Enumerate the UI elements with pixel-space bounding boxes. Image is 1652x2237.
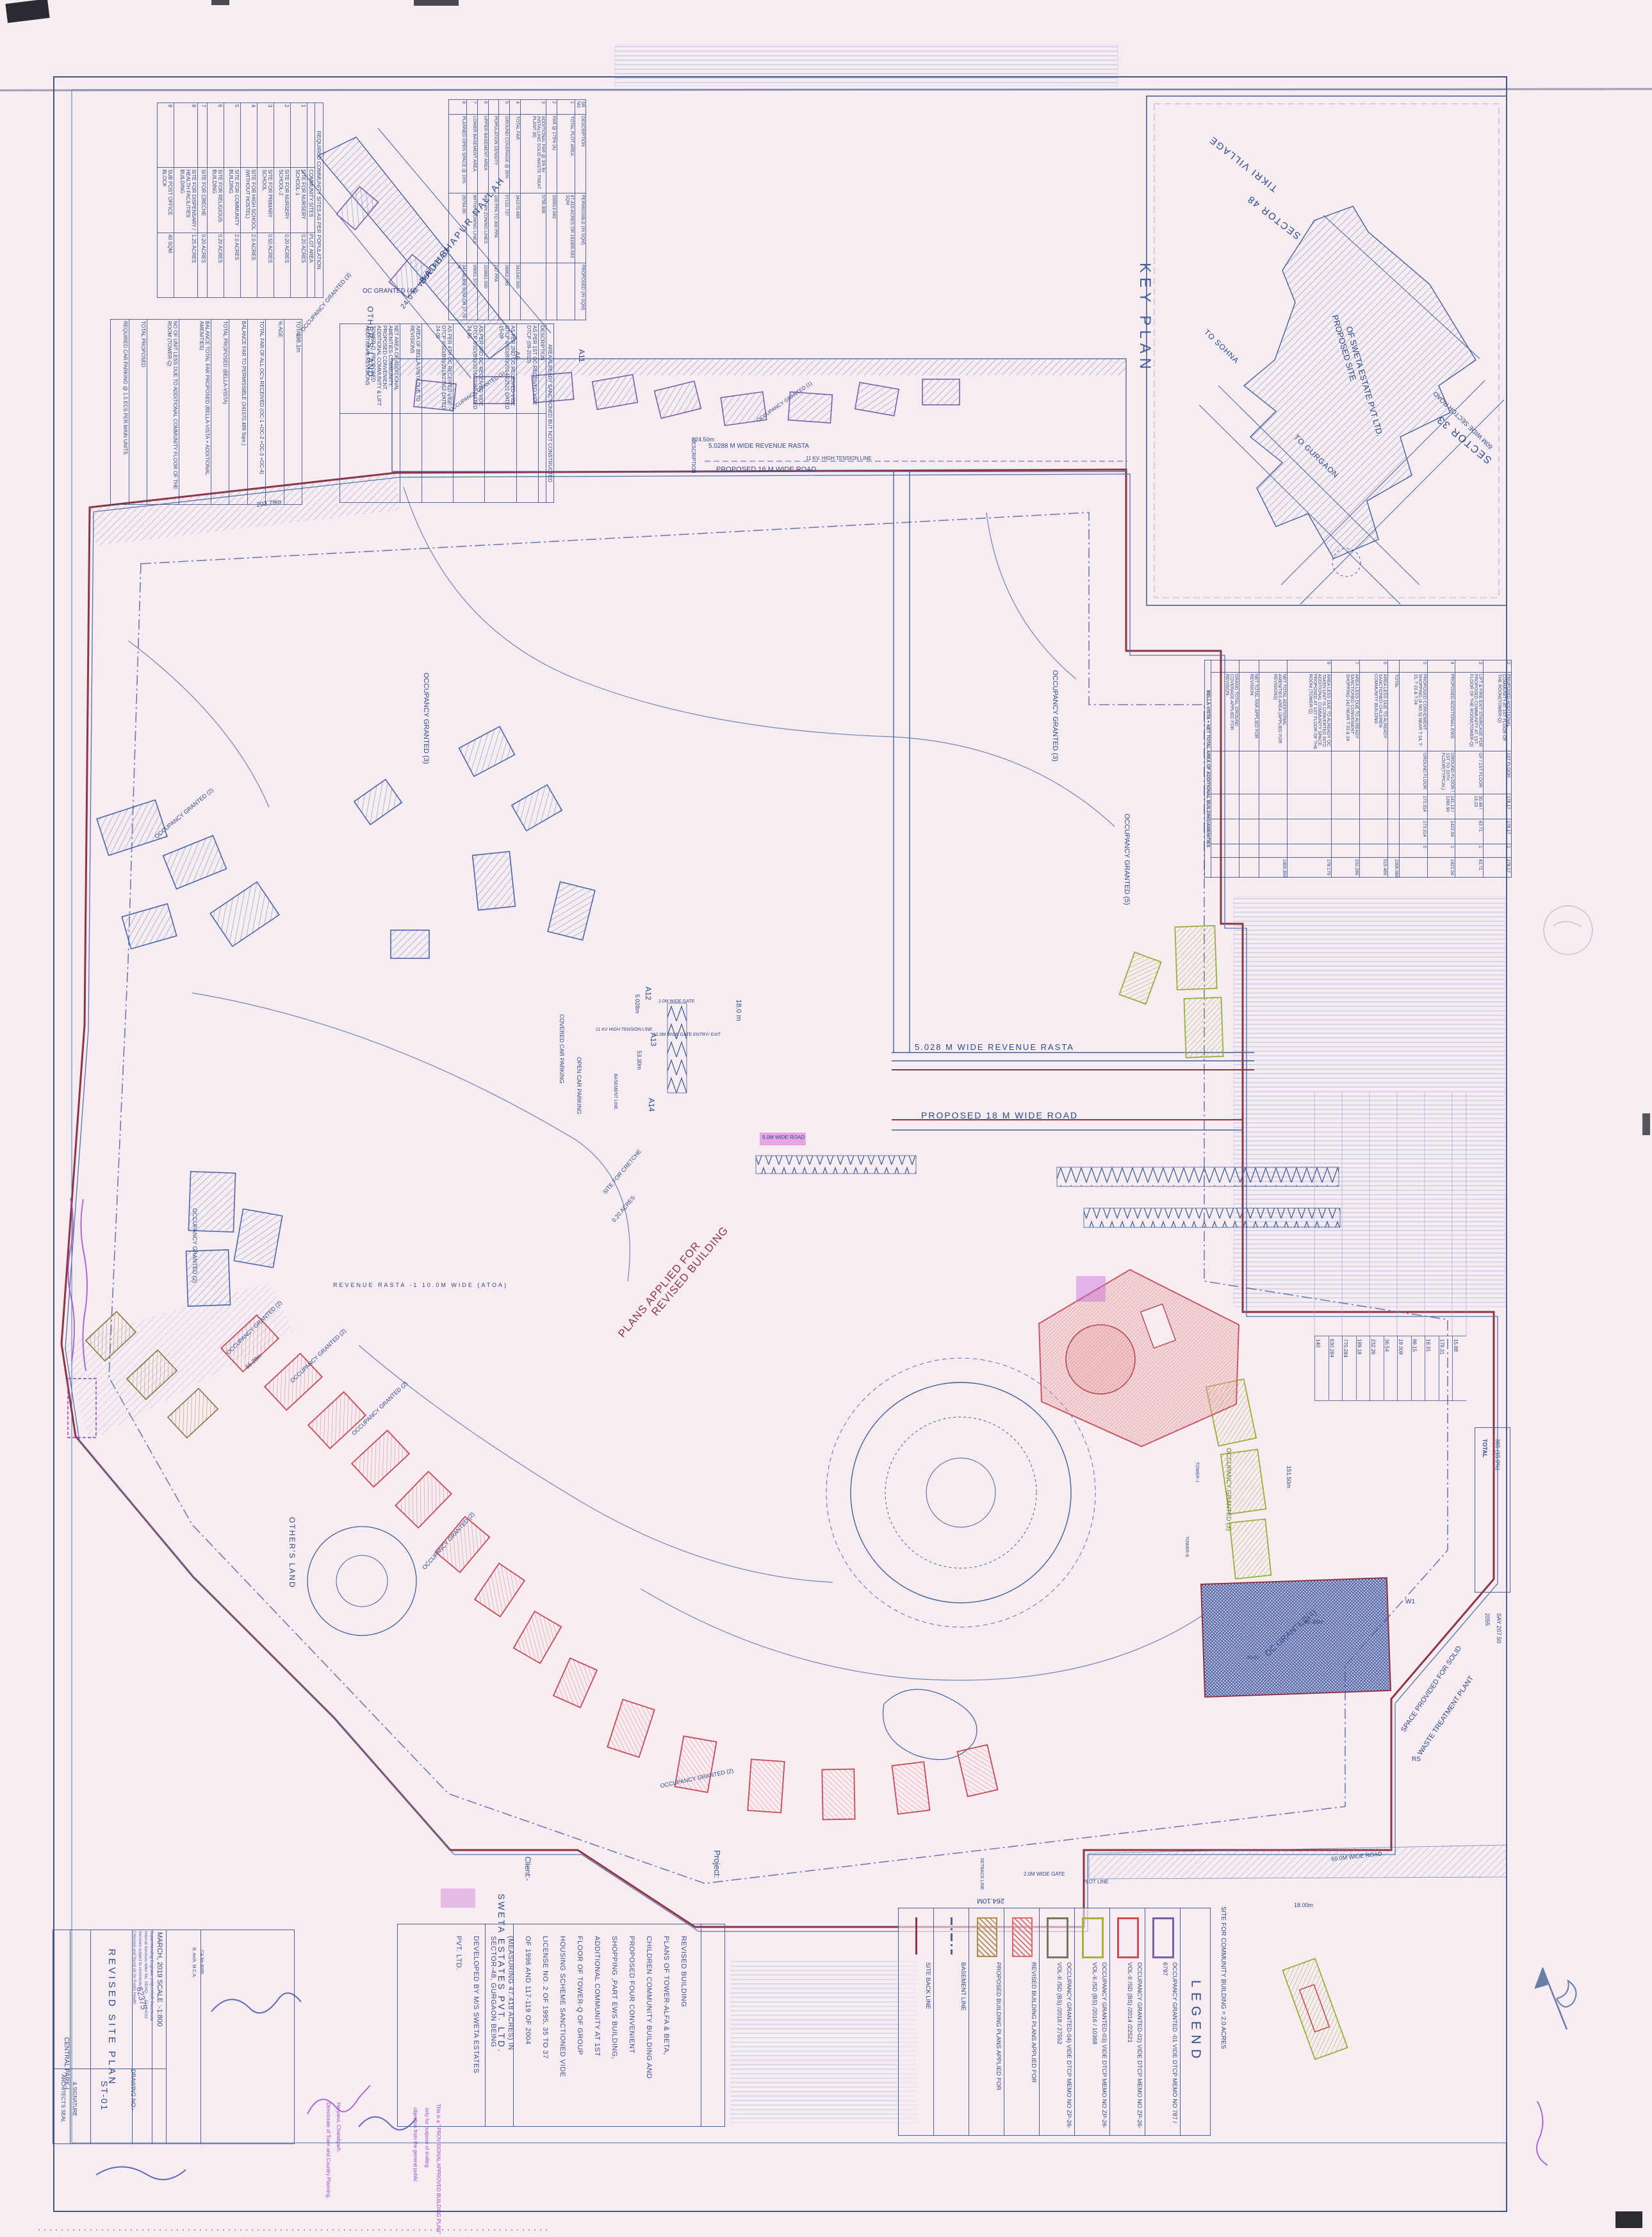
community-table-title: REQUIRED COMMUNITY SITES AS PER POPULATI… bbox=[315, 103, 323, 298]
legend-swatch bbox=[951, 1917, 953, 1954]
scan-artifact bbox=[1642, 1113, 1650, 1135]
summary-row: % AGE bbox=[266, 320, 284, 505]
numbers-strip-cell: 98.15 bbox=[1411, 1336, 1425, 1401]
legend-swatch bbox=[977, 1917, 997, 1957]
area-statement-row: 5GROUND COVERAGE @ 35%67132.73728962.095 bbox=[499, 100, 510, 320]
amendment-row: 2PROPOSED ADDITIONAL COMMUNITY AT 1ST FL… bbox=[1484, 660, 1512, 878]
project-description-line: PVT. LTD. bbox=[455, 1936, 462, 1971]
legend-item: OCCUPANCY GRANTED-02) VIDE DTCP MEMO NO … bbox=[1109, 1908, 1145, 2135]
title-block bbox=[53, 1930, 295, 2144]
legend-swatch bbox=[1012, 1917, 1033, 1957]
project-description-line: (MEASURING 47.418 ACRES) IN bbox=[507, 1936, 514, 2051]
legend-label: OCCUPANCY GRANTED -01 VIDE DTCP MEMO NO … bbox=[1148, 1962, 1179, 2131]
legend-swatch bbox=[1117, 1917, 1139, 1958]
summary-row: TOTAL PROPOSED (BELLA-VISTA) bbox=[211, 320, 229, 505]
legend-label: SITE BACK LINE bbox=[901, 1962, 933, 2131]
scan-artifact bbox=[211, 0, 229, 5]
project-description-line: DEVELOPED BY M/S SWETA ESTATES bbox=[472, 1936, 480, 2074]
community-sites-table: REQUIRED COMMUNITY SITES AS PER POPULATI… bbox=[157, 102, 323, 298]
legend-swatch bbox=[915, 1917, 917, 1954]
scanned-site-plan-sheet: REQUIRED COMMUNITY SITES AS PER POPULATI… bbox=[0, 0, 1652, 2237]
numbers-strip-cell: 19.31 bbox=[1425, 1336, 1439, 1401]
numbers-strip-cell: 770.284 bbox=[1342, 1336, 1356, 1401]
scan-artifact bbox=[1615, 2211, 1642, 2228]
amendment-row: 6AREA LESS DUE TO ALREADY SANCTIONED CHI… bbox=[1359, 660, 1387, 878]
numbers-strip-cell: 19.309 bbox=[1397, 1336, 1411, 1401]
sanctioned-row: AREA OF BELLA-VISTA DUE TO REVISIONS bbox=[400, 324, 421, 503]
amendment-table: 2PROPOSED ADDITIONAL COMMUNITY AT 1ST FL… bbox=[1204, 660, 1512, 878]
summary-row: BALANCE FAR TO PERMISSIBLE (341570.489 S… bbox=[229, 320, 247, 505]
numbers-strip: 140630.284770.284189.18232.2636.5419.309… bbox=[1314, 1336, 1468, 1400]
summary-row: BALANCE TOTAL FAR PROPOSED (BELLA-VISTA … bbox=[179, 320, 211, 505]
numbers-strip-cell: 189.18 bbox=[1356, 1336, 1370, 1401]
project-description-line: REVISED BUILDING bbox=[680, 1936, 687, 2007]
legend-item: OCCUPANCY GRANTED-04) VIDE DTCP MEMO NO … bbox=[1039, 1908, 1075, 2135]
project-block: REVISED BUILDINGPLANS OF TOWER-ALFA & BE… bbox=[397, 1924, 725, 2127]
community-site-row: 9SUB POST OFFICE BLOCK40 SQM bbox=[158, 103, 174, 298]
community-site-row: 8SITE FOR DISPENSARY / HEALTH FACILITIES… bbox=[174, 103, 198, 298]
sanctioned-row: AS PER 4TH OC RECEIVED VIDE DTCP II/SD(B… bbox=[421, 324, 453, 503]
summary-row: REQUIRED CAR PARKING @ 1.5 ECS PER MAIN … bbox=[111, 320, 129, 505]
amendment-row: GRAND TOTAL GROUND COVERAGE APPLIED FOR … bbox=[1211, 660, 1239, 878]
area-statement-row: 6UPPER BASEMENT AREAWITHIN ZONING LINES1… bbox=[478, 100, 489, 320]
legend-item: SITE BACK LINE bbox=[898, 1908, 934, 2135]
amendment-row: 3LIFT & FIRE EXIT STAIRCASE FOR PROPOSED… bbox=[1455, 660, 1484, 878]
numbers-strip-cell: 140 bbox=[1314, 1336, 1329, 1401]
summary-row: TOTAL bbox=[284, 320, 302, 505]
project-description-line: CHILDREN COMMUNITY BUILDING AND bbox=[645, 1936, 653, 2079]
legend: LEGEND OCCUPANCY GRANTED -01 VIDE DTCP M… bbox=[898, 1908, 1211, 2136]
community-site-row: 6SITE FOR RELIGIOUS BUILDING0.20 ACRES bbox=[208, 103, 224, 298]
sanctioned-row: AS PER 3RD OC RECEIVED VIDE DTCP II/SD(B… bbox=[454, 324, 485, 503]
area-statement-row: 4TOTAL FAR341570.489341042.500 bbox=[510, 100, 521, 320]
community-site-row: 7SITE FOR CRECHE0.20 ACRES bbox=[198, 103, 208, 298]
sanctioned-row: AS PER 2ND OC RECEIVED VIDE DTCP II/SD(B… bbox=[485, 324, 516, 503]
area-statement-row: 2FAR @ 175% (A)335813.683 bbox=[546, 100, 557, 320]
community-site-row: 1SITE FOR NURSERY SCHOOL-10.20 ACRES bbox=[291, 103, 307, 298]
community-site-row: 2SITE FOR NURSERY SCHOOL-20.20 ACRES bbox=[274, 103, 291, 298]
legend-label: REVISED BUILDING PLANS APPLIED FOR bbox=[1007, 1962, 1038, 2131]
amendment-row: NET TOTAL FAR APPLIED FOR REVISION bbox=[1239, 660, 1259, 878]
project-description-line: SHOPPING ,PART EWS BUILDING, bbox=[610, 1936, 618, 2059]
legend-label: BASEMENT LINE bbox=[936, 1962, 968, 2131]
numbers-strip-cell: 630.284 bbox=[1329, 1336, 1343, 1401]
community-site-row: 4SITE FOR HIGH SCHOOL (WITHOUT HOSTEL)2.… bbox=[241, 103, 258, 298]
community-site-row: 5SITE FOR COMMUNITY BUILDING2.0 ACRES bbox=[224, 103, 241, 298]
amendment-footer: BELLA-VISTA + NET TOTAL AREA OF ADDITION… bbox=[1205, 660, 1211, 878]
sanctioned-row: AS PER 1ST OC RECEIVED VIDE DTCP (09-201… bbox=[516, 324, 538, 503]
numbers-strip-cell: 15.88 bbox=[1452, 1336, 1466, 1401]
project-description-line: LICENSE NO. 2 OF 1995, 35 TO 37 bbox=[541, 1936, 549, 2059]
area-statement-row: 1TOTAL PLOT AREA47.410 ACRES OR 191806.6… bbox=[557, 100, 575, 320]
total-box bbox=[1475, 1427, 1510, 1593]
project-description-line: PROPOSED FOUR CONVENIENT bbox=[628, 1936, 635, 2054]
project-description-line: ADDITIONAL COMMUNITY AT 1ST bbox=[593, 1936, 601, 2057]
project-description-line: FLOOR OF TOWER-Q OF GROUP bbox=[576, 1936, 584, 2055]
project-description-line: PLANS OF TOWER-ALFA & BETA, bbox=[662, 1936, 670, 2055]
legend-swatch bbox=[1152, 1917, 1174, 1958]
legend-label: OCCUPANCY GRANTED-03) VIDE DTCP MEMO NO … bbox=[1077, 1962, 1109, 2131]
legend-item: REVISED BUILDING PLANS APPLIED FOR bbox=[1004, 1908, 1040, 2135]
legend-item: OCCUPANCY GRANTED-03) VIDE DTCP MEMO NO … bbox=[1074, 1908, 1110, 2135]
amendment-row: 8AREA LESS DUE TO ALREADY OC TAKEN UNIT … bbox=[1287, 660, 1331, 878]
sanctioned-row: NET AREA OF ADDITIONAL AMENITIES COMMUNI… bbox=[340, 324, 400, 503]
far-summary-table: TOTAL% AGETOTAL FAR OF ALL OC's RECEIVED… bbox=[110, 319, 302, 505]
legend-swatch bbox=[1047, 1917, 1068, 1958]
area-statement-row: 3ADDITIONAL FAR @ 3% for INSTALLING SOLI… bbox=[520, 100, 546, 320]
sanctioned-area-table: AREA ALREADY SANCTIONED BUT NOT CONSTRUC… bbox=[339, 324, 554, 503]
amendment-row: 7AREA LESS DUE TO ALREADY SANCTIONED CON… bbox=[1331, 660, 1359, 878]
summary-row: NO OF UNIT LESS DUE TO ADDITIONAL COMMUN… bbox=[147, 320, 179, 505]
legend-label: OCCUPANCY GRANTED-02) VIDE DTCP MEMO NO … bbox=[1113, 1962, 1144, 2131]
summary-row: TOTAL PROPOSED bbox=[129, 320, 147, 505]
summary-row: TOTAL FAR OF ALL OC's RECEIVED (OC-1 +OC… bbox=[247, 320, 265, 505]
area-statement-row: POPULATION DENSITY100 PPA TO 300 PPA247 … bbox=[488, 100, 499, 320]
legend-label: PROPOSED BUILDING PLANS APPLIED FOR bbox=[972, 1962, 1003, 2131]
legend-swatch bbox=[1082, 1917, 1104, 1958]
scan-artifact bbox=[414, 0, 459, 6]
amendment-row: NET TOTAL ADDITIONAL AMENITIES AREA (APP… bbox=[1259, 660, 1287, 878]
legend-item: PROPOSED BUILDING PLANS APPLIED FOR bbox=[969, 1908, 1004, 2135]
legend-item: OCCUPANCY GRANTED -01 VIDE DTCP MEMO NO … bbox=[1145, 1908, 1181, 2135]
area-statement-row: 7LOWER BASEMENT AREAWITHIN ZONING LINES9… bbox=[467, 100, 478, 320]
amendment-row: TOTAL 2306.084 bbox=[1387, 660, 1399, 878]
amendment-row: 4PROPOSED ADDITIONAL EWS GROUND FLOOR / … bbox=[1427, 660, 1455, 878]
numbers-strip-cell: 179.31 bbox=[1439, 1336, 1453, 1401]
numbers-strip-cell: 36.54 bbox=[1384, 1336, 1398, 1401]
legend-label: OCCUPANCY GRANTED-04) VIDE DTCP MEMO NO … bbox=[1042, 1962, 1074, 2131]
project-description-line: HOUSING SCHEME SANCTIONED VIDE bbox=[559, 1936, 566, 2077]
numbers-strip-cell: 232.26 bbox=[1370, 1336, 1384, 1401]
community-site-row: 3SITE FOR PRIMARY SCHOOL0.50 ACRES bbox=[258, 103, 274, 298]
amendment-row: 5PROPOSED CONVENIENT SHOPPING (4 NO.S) N… bbox=[1399, 660, 1427, 878]
area-statement-table: SR NO DESCRIPTION PERMISSIBLE (IN SQM) P… bbox=[448, 99, 586, 320]
project-description-line: SECTOR-48, GURGAON BEING bbox=[489, 1936, 497, 2047]
project-description-line: OF 1996 AND 117-119 OF 2004 bbox=[524, 1936, 532, 2045]
legend-item: BASEMENT LINE bbox=[933, 1908, 969, 2135]
area-statement-row: 8PLANNED OPEN SPACE @ 15%29794.0034140.8… bbox=[449, 100, 467, 320]
